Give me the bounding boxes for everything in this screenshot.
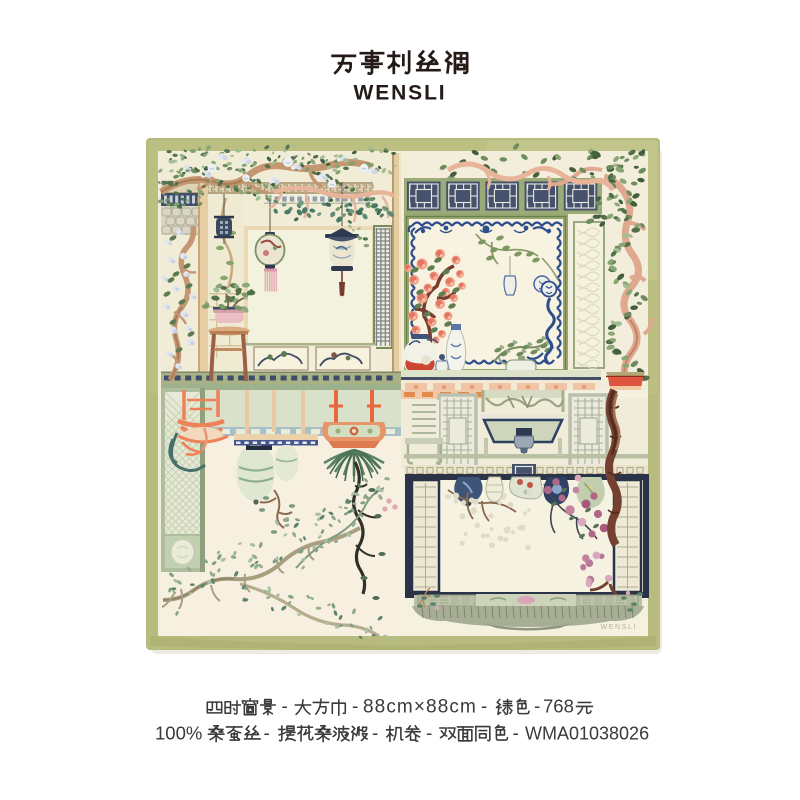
svg-text:-: - bbox=[534, 697, 540, 718]
svg-text:WENSLI: WENSLI bbox=[601, 624, 637, 631]
svg-text:WENSLI: WENSLI bbox=[353, 82, 446, 105]
svg-text:100%: 100% bbox=[155, 723, 202, 744]
svg-text:-: - bbox=[513, 724, 519, 745]
svg-text:88cm×88cm: 88cm×88cm bbox=[363, 697, 477, 718]
svg-text:-: - bbox=[481, 697, 487, 718]
svg-text:WMA01038026: WMA01038026 bbox=[525, 724, 649, 744]
svg-text:-: - bbox=[282, 697, 288, 718]
svg-text:-: - bbox=[372, 724, 378, 745]
svg-text:-: - bbox=[426, 724, 432, 745]
svg-text:-: - bbox=[264, 724, 270, 745]
svg-text:768: 768 bbox=[543, 696, 574, 717]
svg-text:-: - bbox=[352, 697, 358, 718]
